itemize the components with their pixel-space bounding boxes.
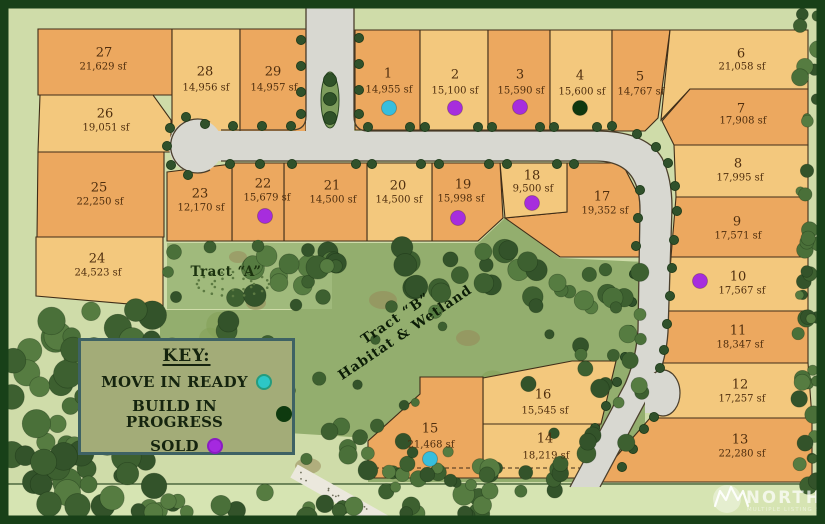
tree-icon xyxy=(301,453,312,464)
lot-3-status-dot-sold xyxy=(513,100,528,115)
lot-5-sqft: 14,767 sf xyxy=(617,87,665,98)
gravel-speckle xyxy=(300,478,302,480)
tree-icon xyxy=(797,435,813,451)
lot-6-sqft: 21,058 sf xyxy=(718,62,766,73)
legend-item-sold: SOLD xyxy=(81,438,292,455)
tree-icon xyxy=(801,266,813,278)
legend-box: KEY: MOVE IN READY BUILD IN PROGRESS SOL… xyxy=(78,338,295,455)
gravel-speckle xyxy=(366,508,368,510)
tree-icon xyxy=(218,311,239,332)
tree-icon xyxy=(161,494,177,510)
street-tree-icon xyxy=(434,159,443,168)
tree-icon xyxy=(316,290,331,305)
tree-icon xyxy=(793,457,806,470)
lot-10-number: 10 xyxy=(730,270,747,285)
tree-icon xyxy=(618,434,635,451)
tree-icon xyxy=(622,352,638,368)
tree-icon xyxy=(800,164,813,177)
lot-8-sqft: 17,995 sf xyxy=(716,173,764,184)
tree-icon xyxy=(796,8,808,20)
street-tree-icon xyxy=(354,59,363,68)
tree-icon xyxy=(607,349,619,361)
tree-icon xyxy=(82,302,101,321)
lot-10-status-dot-sold xyxy=(693,274,708,289)
tree-icon xyxy=(582,267,596,281)
street-tree-icon xyxy=(672,206,681,215)
lot-23-sqft: 12,170 sf xyxy=(177,203,225,214)
tract-a-dot xyxy=(211,283,214,286)
lot-18-status-dot-sold xyxy=(525,196,540,211)
lot-9-number: 9 xyxy=(733,215,741,230)
tree-icon xyxy=(792,327,804,339)
lot-11-sqft: 18,347 sf xyxy=(716,340,764,351)
legend-label-sold: SOLD xyxy=(150,438,199,455)
lot-28-sqft: 14,956 sf xyxy=(182,83,230,94)
lot-18-sqft: 9,500 sf xyxy=(513,184,555,195)
tree-icon xyxy=(279,254,299,274)
street-tree-icon xyxy=(487,122,496,131)
lot-16-number: 16 xyxy=(535,388,552,403)
lot-8-number: 8 xyxy=(734,157,742,172)
lot-25-sqft: 22,250 sf xyxy=(76,197,124,208)
legend-dot-move-in-ready-icon xyxy=(256,374,272,390)
street-tree-icon xyxy=(296,87,305,96)
tree-icon xyxy=(518,252,538,272)
tree-icon xyxy=(420,467,435,482)
tree-icon xyxy=(482,483,499,500)
tree-icon xyxy=(545,330,554,339)
median-tree-icon xyxy=(324,93,337,106)
tree-icon xyxy=(799,188,812,201)
tree-icon xyxy=(316,495,334,513)
lot-25-number: 25 xyxy=(91,181,108,196)
lot-4-status-dot-build-in-progress xyxy=(573,101,588,116)
lot-19-number: 19 xyxy=(455,178,472,193)
lot-20-number: 20 xyxy=(390,179,407,194)
street-tree-icon xyxy=(181,112,190,121)
street-tree-icon xyxy=(663,158,672,167)
lot-2-number: 2 xyxy=(451,68,459,83)
lot-1-status-dot-move-in-ready xyxy=(382,101,397,116)
tree-icon xyxy=(635,333,647,345)
lot-22-status-dot-sold xyxy=(258,209,273,224)
tree-icon xyxy=(243,284,266,307)
legend-item-move-in-ready: MOVE IN READY xyxy=(81,374,292,391)
lot-10-sqft: 17,567 sf xyxy=(718,286,766,297)
lot-19-status-dot-sold xyxy=(451,211,466,226)
street-tree-icon xyxy=(296,35,305,44)
tree-icon xyxy=(80,476,97,493)
lot-12-sqft: 17,257 sf xyxy=(718,394,766,405)
street-tree-icon xyxy=(655,363,664,372)
tree-icon xyxy=(382,465,395,478)
lot-5-number: 5 xyxy=(636,70,644,85)
tract-a-dot xyxy=(243,294,246,297)
tract-a-dot xyxy=(221,288,224,291)
legend-title: KEY: xyxy=(81,346,292,366)
tree-icon xyxy=(37,492,62,517)
street-tree-icon xyxy=(549,122,558,131)
street-tree-icon xyxy=(354,33,363,42)
tree-icon xyxy=(290,299,302,311)
tree-icon xyxy=(451,267,468,284)
lot-24-number: 24 xyxy=(89,252,106,267)
lot-1-sqft: 14,955 sf xyxy=(365,85,413,96)
tree-icon xyxy=(613,397,624,408)
tree-icon xyxy=(394,253,417,276)
street-tree-icon xyxy=(183,170,192,179)
street-tree-icon xyxy=(367,159,376,168)
lot-9-sqft: 17,571 sf xyxy=(714,231,762,242)
tree-icon xyxy=(400,456,415,471)
tree-icon xyxy=(353,380,363,390)
tree-icon xyxy=(438,322,447,331)
tree-icon xyxy=(599,263,612,276)
lot-14-sqft: 18,219 sf xyxy=(522,451,570,462)
legend-dot-build-in-progress-icon xyxy=(276,406,292,422)
tree-icon xyxy=(791,69,808,86)
legend-dot-sold-icon xyxy=(207,438,223,454)
gravel-speckle xyxy=(335,495,337,497)
tree-icon xyxy=(631,263,649,281)
tree-icon xyxy=(791,391,808,408)
street-tree-icon xyxy=(200,119,209,128)
tree-icon xyxy=(370,419,384,433)
street-tree-icon xyxy=(639,424,648,433)
tree-icon xyxy=(475,243,492,260)
tree-icon xyxy=(332,503,346,517)
street-tree-icon xyxy=(162,141,171,150)
tree-icon xyxy=(270,274,288,292)
lot-24-sqft: 24,523 sf xyxy=(74,268,122,279)
street-tree-icon xyxy=(632,129,641,138)
tract-a-dot xyxy=(232,295,235,298)
tree-icon xyxy=(361,447,374,460)
lot-2-status-dot-sold xyxy=(448,101,463,116)
tree-icon xyxy=(141,473,167,499)
street-tree-icon xyxy=(535,122,544,131)
lot-13-number: 13 xyxy=(732,433,749,448)
tree-icon xyxy=(358,460,378,480)
tree-icon xyxy=(256,484,273,501)
lot-26-number: 26 xyxy=(97,107,114,122)
street-tree-icon xyxy=(473,122,482,131)
street-tree-icon xyxy=(669,235,678,244)
street-tree-icon xyxy=(296,61,305,70)
tree-icon xyxy=(801,231,815,245)
street-tree-icon xyxy=(166,160,175,169)
tree-icon xyxy=(320,259,334,273)
lot-27-number: 27 xyxy=(96,46,113,61)
lot-20-sqft: 14,500 sf xyxy=(375,195,423,206)
tree-icon xyxy=(631,377,647,393)
lot-17-number: 17 xyxy=(594,190,611,205)
ground-patch xyxy=(456,330,480,346)
tree-icon xyxy=(252,240,264,252)
tree-icon xyxy=(321,423,338,440)
tree-icon xyxy=(808,454,818,464)
tree-icon xyxy=(574,291,593,310)
watermark-brand: NORTHWEST xyxy=(746,488,825,507)
gravel-speckle xyxy=(300,472,302,474)
tree-icon xyxy=(795,291,804,300)
street-tree-icon xyxy=(612,377,621,386)
tree-icon xyxy=(204,241,216,253)
tree-icon xyxy=(31,449,57,475)
lot-22-sqft: 15,679 sf xyxy=(243,193,291,204)
street-tree-icon xyxy=(484,159,493,168)
lot-14-number: 14 xyxy=(537,432,554,447)
tree-icon xyxy=(339,446,357,464)
gravel-speckle xyxy=(328,488,330,490)
lot-18-number: 18 xyxy=(524,169,541,184)
lot-15-sqft: 21,468 sf xyxy=(407,440,455,451)
lot-21-sqft: 14,500 sf xyxy=(309,195,357,206)
tract-a-dot xyxy=(250,286,253,289)
tree-icon xyxy=(575,348,587,360)
tract-a-dot xyxy=(221,294,224,297)
median-tree-icon xyxy=(324,74,337,87)
gravel-speckle xyxy=(364,506,366,508)
tree-icon xyxy=(474,273,494,293)
tree-icon xyxy=(345,497,364,516)
tree-icon xyxy=(578,361,593,376)
lot-15-status-dot-move-in-ready xyxy=(423,452,438,467)
street-tree-icon xyxy=(416,159,425,168)
tract-a-dot xyxy=(197,286,200,289)
street-tree-icon xyxy=(354,109,363,118)
tree-icon xyxy=(38,307,66,335)
tree-icon xyxy=(116,462,139,485)
lot-16-sqft: 15,545 sf xyxy=(521,406,569,417)
lot-15-number: 15 xyxy=(422,422,439,437)
tree-icon xyxy=(610,302,622,314)
plat-map-image: 2721,629 sf2619,051 sf2522,250 sf2424,52… xyxy=(0,0,825,524)
street-tree-icon xyxy=(228,121,237,130)
lot-28-number: 28 xyxy=(197,65,214,80)
tree-icon xyxy=(444,474,457,487)
lot-4-sqft: 15,600 sf xyxy=(558,87,606,98)
street-tree-icon xyxy=(662,319,671,328)
tree-icon xyxy=(479,467,495,483)
tree-icon xyxy=(65,494,91,520)
lot-23-number: 23 xyxy=(192,187,209,202)
street-tree-icon xyxy=(592,122,601,131)
street-tree-icon xyxy=(225,159,234,168)
lot-22-number: 22 xyxy=(255,177,272,192)
tract-a-dot xyxy=(268,283,271,286)
lot-7-number: 7 xyxy=(737,102,745,117)
tract-a-dot xyxy=(250,280,253,283)
tract-a-dot xyxy=(266,279,269,282)
gravel-speckle xyxy=(338,495,340,497)
lot-13-sqft: 22,280 sf xyxy=(718,449,766,460)
legend-item-build-in-progress: BUILD IN PROGRESS xyxy=(81,398,292,431)
lot-3-sqft: 15,590 sf xyxy=(497,86,545,97)
median-tree-icon xyxy=(324,112,337,125)
lot-29 xyxy=(240,29,306,132)
tree-icon xyxy=(806,314,816,324)
tree-icon xyxy=(399,400,409,410)
street-tree-icon xyxy=(631,241,640,250)
tract-a-dot xyxy=(214,280,217,283)
lot-7-sqft: 17,908 sf xyxy=(719,116,767,127)
street-tree-icon xyxy=(363,122,372,131)
street-tree-icon xyxy=(420,122,429,131)
tree-icon xyxy=(549,274,566,291)
tree-icon xyxy=(170,291,181,302)
tract-a-dot xyxy=(261,290,264,293)
tree-icon xyxy=(579,433,596,450)
tree-icon xyxy=(167,245,182,260)
tree-icon xyxy=(634,308,646,320)
lot-12-number: 12 xyxy=(732,378,749,393)
tree-icon xyxy=(390,482,400,492)
lot-19-sqft: 15,998 sf xyxy=(437,194,485,205)
street-tree-icon xyxy=(607,121,616,130)
street-tree-icon xyxy=(667,263,676,272)
lot-29-number: 29 xyxy=(265,65,282,80)
tree-icon xyxy=(162,266,173,277)
street-tree-icon xyxy=(617,462,626,471)
gravel-speckle xyxy=(332,494,334,496)
tree-icon xyxy=(49,415,66,432)
lot-4-number: 4 xyxy=(576,69,584,84)
tract-a-dot xyxy=(196,283,199,286)
street-tree-icon xyxy=(502,159,511,168)
lot-3-number: 3 xyxy=(516,68,524,83)
street-tree-icon xyxy=(351,159,360,168)
lot-26-sqft: 19,051 sf xyxy=(82,123,130,134)
street-tree-icon xyxy=(354,85,363,94)
street-tree-icon xyxy=(635,185,644,194)
street-tree-icon xyxy=(286,121,295,130)
street-tree-icon xyxy=(257,121,266,130)
tree-icon xyxy=(619,325,637,343)
street-tree-icon xyxy=(633,213,642,222)
lot-6-number: 6 xyxy=(737,47,745,62)
street-tree-icon xyxy=(670,181,679,190)
tract-a-dot xyxy=(211,292,214,295)
tree-icon xyxy=(411,398,419,406)
lot-27-sqft: 21,629 sf xyxy=(79,62,127,73)
gravel-speckle xyxy=(328,490,330,492)
tree-icon xyxy=(793,19,807,33)
tree-icon xyxy=(465,479,476,490)
street-tree-icon xyxy=(552,159,561,168)
tree-icon xyxy=(443,252,458,267)
tract-a-dot xyxy=(253,292,256,295)
tract-a-label: Tract “A” xyxy=(190,264,261,280)
tree-icon xyxy=(794,374,810,390)
tree-icon xyxy=(499,241,518,260)
tree-icon xyxy=(529,299,543,313)
street-tree-icon xyxy=(296,109,305,118)
lot-11-number: 11 xyxy=(730,324,747,339)
tract-a-dot xyxy=(214,286,217,289)
lot-29-sqft: 14,957 sf xyxy=(250,83,298,94)
nwmls-watermark: NORTHWEST MULTIPLE LISTING SERVICE xyxy=(713,485,825,513)
tree-icon xyxy=(211,495,231,515)
tract-a-dot xyxy=(266,286,269,289)
tract-a-dot xyxy=(232,289,235,292)
lot-1-number: 1 xyxy=(384,67,392,82)
street-tree-icon xyxy=(405,122,414,131)
tree-icon xyxy=(227,289,245,307)
tract-a-dot xyxy=(203,290,206,293)
street-tree-icon xyxy=(649,412,658,421)
street-tree-icon xyxy=(255,159,264,168)
tree-icon xyxy=(301,243,314,256)
legend-label-build-in-progress: BUILD IN PROGRESS xyxy=(81,398,268,431)
street-tree-icon xyxy=(659,345,668,354)
tree-icon xyxy=(124,299,147,322)
tree-icon xyxy=(100,486,124,510)
watermark-tagline: MULTIPLE LISTING SERVICE xyxy=(747,507,825,513)
tree-icon xyxy=(591,379,610,398)
street-tree-icon xyxy=(651,142,660,151)
tree-icon xyxy=(515,485,527,497)
lot-2-sqft: 15,100 sf xyxy=(431,86,479,97)
tree-icon xyxy=(801,115,813,127)
street-tree-icon xyxy=(165,123,174,132)
street-tree-icon xyxy=(665,291,674,300)
street-tree-icon xyxy=(287,159,296,168)
tree-icon xyxy=(22,409,50,437)
tree-icon xyxy=(30,377,50,397)
tree-icon xyxy=(519,465,533,479)
lot-21-number: 21 xyxy=(324,179,341,194)
tract-a-dot xyxy=(242,288,245,291)
tree-icon xyxy=(312,372,325,385)
legend-label-move-in-ready: MOVE IN READY xyxy=(101,374,248,391)
street-tree-icon xyxy=(569,159,578,168)
gravel-speckle xyxy=(305,480,307,482)
tract-a-dot xyxy=(253,283,256,286)
street-tree-icon xyxy=(601,401,610,410)
lot-17-sqft: 19,352 sf xyxy=(581,206,629,217)
